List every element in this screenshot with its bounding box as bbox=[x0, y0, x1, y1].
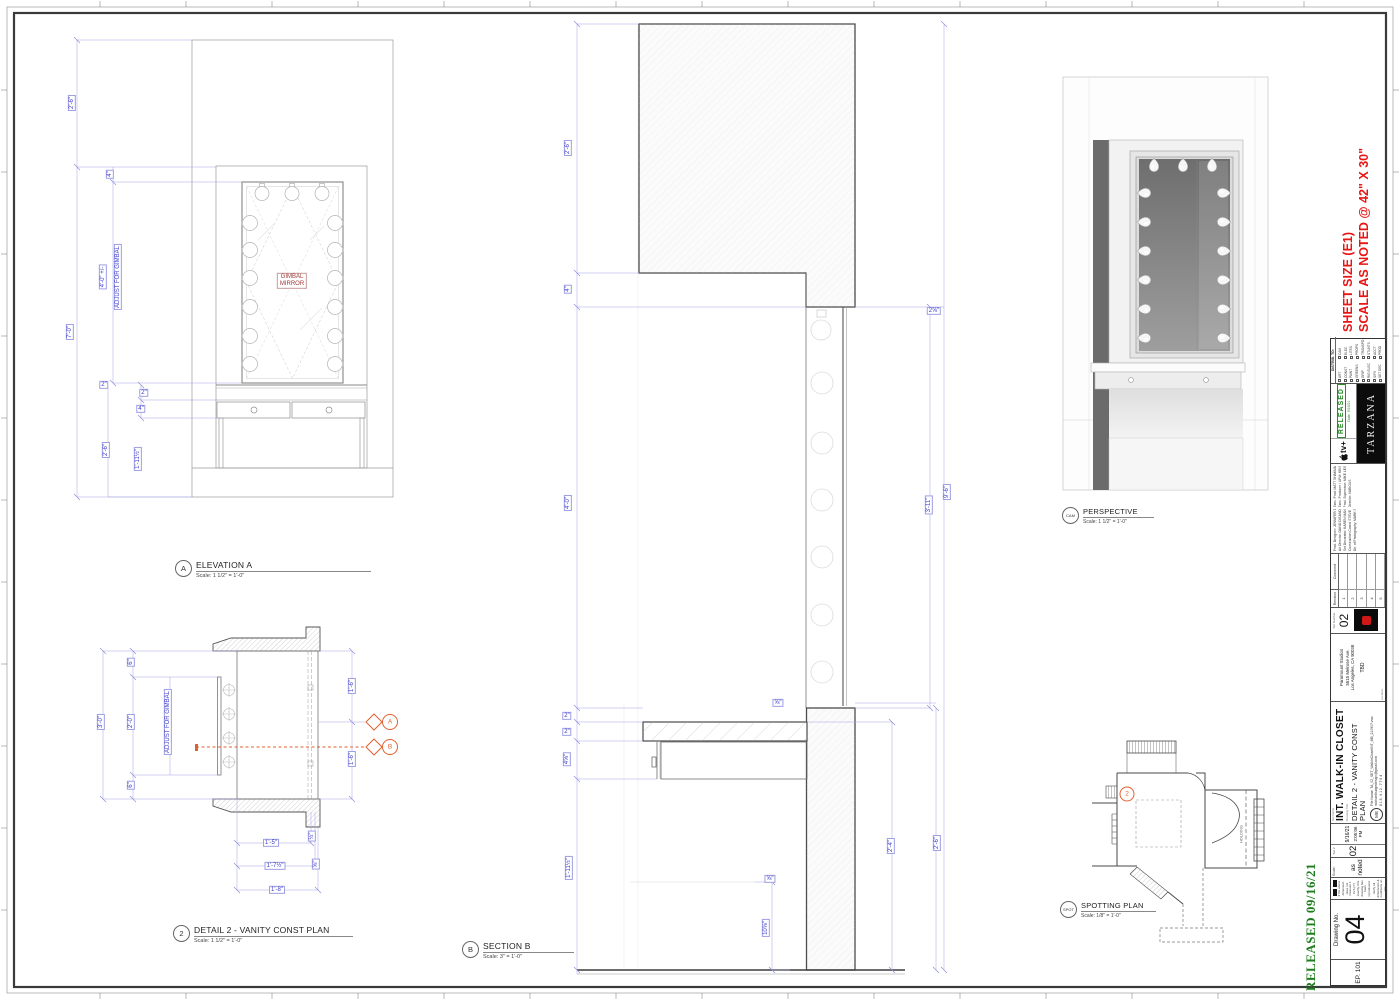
dim-label: 1'-11½" bbox=[565, 856, 573, 880]
dim-label: 3'-11" bbox=[925, 496, 933, 515]
show-title: TARZANA bbox=[1366, 393, 1377, 454]
drawing-number: 04 bbox=[1342, 900, 1369, 959]
set-number-box: Set Number 02 bbox=[1331, 607, 1385, 633]
drawing-sheet: 2'-6" 4" 4'-0" +/- ADJUST FOR GIMBAL 7'-… bbox=[0, 0, 1400, 1000]
revision-row: 1 bbox=[1339, 554, 1348, 607]
stage-value: TBD bbox=[1360, 634, 1366, 701]
dim-label: 2'-6" bbox=[564, 140, 572, 156]
callout-section-b: B SECTION B Scale: 3" = 1'-0" bbox=[462, 941, 574, 960]
dim-label: 4" bbox=[136, 405, 145, 413]
dim-label: 2" bbox=[139, 389, 148, 397]
dim-label: 2" bbox=[562, 728, 571, 736]
detail2-plan-linework bbox=[195, 627, 398, 827]
revision-row: 5 bbox=[1376, 554, 1385, 607]
plot-date: 9/16/21 bbox=[1345, 824, 1351, 844]
checkbox bbox=[1367, 356, 1370, 359]
episode-box: EP. 101 bbox=[1331, 959, 1385, 985]
disclaimer-box: If the above dimension does not measure … bbox=[1331, 877, 1385, 899]
dim-label: ADJUST FOR GIMBAL bbox=[114, 244, 122, 310]
drawing-title: DETAIL 2 - VANITY CONST PLAN bbox=[1351, 704, 1368, 821]
callout-circle: A bbox=[175, 560, 192, 577]
sheet-size-note: SHEET SIZE (E1) SCALE AS NOTED @ 42" X 3… bbox=[1341, 150, 1375, 332]
checkbox bbox=[1350, 356, 1353, 359]
callout-elevation-a: A ELEVATION A Scale: 1 1/2" = 1'-0" bbox=[175, 560, 371, 579]
checkbox bbox=[1344, 356, 1347, 359]
callout-detail-2: 2 DETAIL 2 - VANITY CONST PLAN Scale: 1 … bbox=[173, 925, 353, 944]
sheet-border bbox=[1, 1, 1399, 999]
checkbox bbox=[1362, 379, 1365, 382]
designer-phone: 8 1 8 . 6 1 2 . 7 7 6 4 bbox=[1379, 716, 1384, 806]
dim-label: 4'-0" +/- bbox=[99, 265, 107, 290]
one-inch-verification-bar bbox=[1333, 881, 1337, 897]
dim-label: 6" bbox=[127, 780, 135, 789]
scale-box: Scale: as noted bbox=[1331, 857, 1385, 877]
revision-table: Revision Comment 1 2 3 4 5 bbox=[1331, 553, 1385, 607]
dim-label: ⅝" bbox=[764, 875, 775, 883]
holding-room-label: HOLDING bbox=[1239, 825, 1244, 843]
dim-label: 9'-6" bbox=[943, 484, 951, 500]
checkbox bbox=[1379, 379, 1382, 382]
dim-label: 1'-11½" bbox=[134, 447, 142, 471]
released-stamp: RELEASED Date: 9/16/21 bbox=[1331, 384, 1356, 438]
apple-icon bbox=[1339, 454, 1348, 461]
callout-circle: SPOT bbox=[1060, 901, 1077, 918]
designer-monogram-logo: MB bbox=[1370, 808, 1383, 821]
dim-label: 4'-0" bbox=[564, 495, 572, 511]
callout-circle: B bbox=[462, 941, 479, 958]
callout-circle: CAM bbox=[1062, 507, 1079, 524]
drawing-number-box: Drawing No. 04 bbox=[1331, 899, 1385, 959]
dim-label: ⅝" bbox=[772, 699, 783, 707]
dim-label: 4" bbox=[564, 284, 572, 293]
dim-label: 4" bbox=[106, 169, 114, 178]
location-box: Paramount Studios5515 Melrose Ave.Los An… bbox=[1331, 633, 1385, 701]
dim-label: 4⅝" bbox=[563, 752, 571, 766]
dim-label: 3'-0" bbox=[97, 714, 105, 730]
sheet-linework bbox=[0, 0, 1400, 1000]
elevation-a-linework bbox=[192, 40, 393, 497]
section-marker-a: A bbox=[388, 719, 392, 726]
studio-logo-box bbox=[1354, 610, 1378, 632]
dim-label: 2" bbox=[99, 381, 108, 389]
dim-label: 2'-4" bbox=[887, 838, 895, 854]
checkbox bbox=[1373, 379, 1376, 382]
revision-row: 2 bbox=[1348, 554, 1357, 607]
dim-label: 1'-6" bbox=[348, 751, 356, 767]
callout-spotting-plan: SPOT SPOTTING PLAN Scale: 1/8" = 1'-0" bbox=[1060, 901, 1156, 919]
checkbox bbox=[1338, 356, 1341, 359]
title-block: EP. 101 Drawing No. 04 If the above dime… bbox=[1330, 338, 1386, 986]
section-marker-b: B bbox=[388, 744, 392, 751]
dim-label: 6" bbox=[127, 657, 135, 666]
dim-label: 1'-8" bbox=[269, 886, 285, 894]
dim-label: 2'-6" bbox=[102, 442, 110, 458]
studio-logo bbox=[1362, 616, 1371, 625]
dim-label: 7'-0" bbox=[66, 324, 74, 340]
checkbox bbox=[1373, 356, 1376, 359]
dim-label: 10⅝" bbox=[762, 919, 770, 937]
dim-label: 2'-6" bbox=[68, 95, 76, 111]
show-title-box: TARZANA bbox=[1357, 384, 1385, 463]
callout-perspective: CAM PERSPECTIVE Scale: 1 1/2" = 1'-0" bbox=[1062, 507, 1154, 525]
checkbox bbox=[1338, 379, 1341, 382]
gimbal-mirror-label: GIMBALMIRROR bbox=[277, 273, 307, 289]
checkbox bbox=[1356, 356, 1359, 359]
checkbox bbox=[1356, 379, 1359, 382]
apple-tv-logo: tv+ bbox=[1331, 438, 1356, 463]
section-b-dims bbox=[574, 21, 947, 974]
dim-label: 2'-6" bbox=[933, 835, 941, 851]
set-number: 02 bbox=[1337, 608, 1351, 633]
distribution-item: PROD bbox=[1378, 338, 1384, 359]
section-b-linework bbox=[577, 24, 905, 974]
released-stamp-note: RELEASED 09/16/21 bbox=[1303, 849, 1320, 991]
perspective-render bbox=[1063, 77, 1268, 490]
show-box: tv+ RELEASED Date: 9/16/21 TARZANA bbox=[1331, 383, 1385, 463]
dim-label: ⅝" bbox=[312, 858, 320, 869]
spotting-detail-marker: 2 bbox=[1125, 791, 1129, 798]
dim-label: 1'-5" bbox=[263, 839, 279, 847]
checkbox bbox=[1350, 379, 1353, 382]
checkbox bbox=[1367, 379, 1370, 382]
revision-row: 4 bbox=[1367, 554, 1376, 607]
callout-circle: 2 bbox=[173, 925, 190, 942]
credits-box: Prod. Designer: JENNIFER DEHGHANArt Dire… bbox=[1331, 463, 1385, 553]
plot-time: 2:05:06 PM bbox=[1353, 824, 1363, 844]
dim-label: 2⅝" bbox=[927, 307, 941, 315]
dim-label: ½" bbox=[308, 830, 316, 841]
dim-label: 1'-6" bbox=[348, 678, 356, 694]
dim-label: 1'-7½" bbox=[265, 862, 286, 870]
revision-row: 3 bbox=[1357, 554, 1366, 607]
checkbox bbox=[1379, 356, 1382, 359]
checkbox bbox=[1344, 379, 1347, 382]
distribution-item: SET DEC bbox=[1378, 361, 1384, 382]
dim-label: 2" bbox=[562, 712, 571, 720]
checkbox bbox=[1362, 356, 1365, 359]
detail2-dims bbox=[100, 648, 366, 893]
dim-label: ADJUST FOR GIMBAL bbox=[164, 689, 172, 755]
distribution-list: DISTRIB. TO: ART CONST PAINT GREENS GRIP bbox=[1331, 337, 1385, 383]
set-date-box: Set # 02 9/16/21 2:05:06 PM bbox=[1331, 823, 1385, 857]
set-name-box: Set Name INT. WALK-IN CLOSET Drawing Tit… bbox=[1331, 701, 1385, 823]
dim-label: 2'-0" bbox=[127, 714, 135, 730]
